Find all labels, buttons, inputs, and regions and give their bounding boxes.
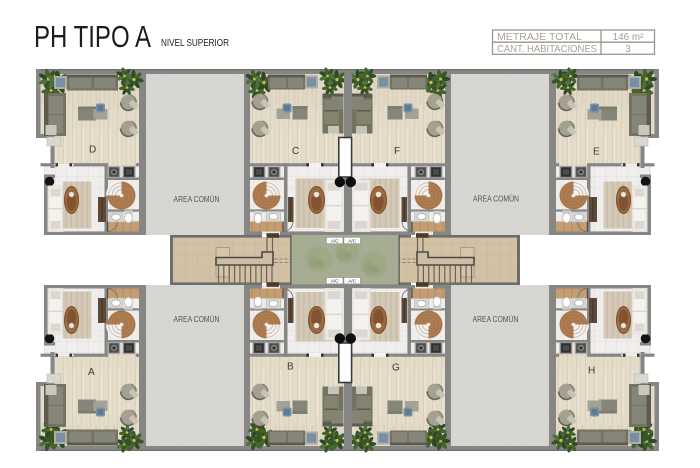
svg-text:G: G xyxy=(392,363,400,374)
svg-text:CANT. HABITACIONES: CANT. HABITACIONES xyxy=(497,44,597,55)
svg-text:H: H xyxy=(588,366,595,377)
svg-text:AREA COMÚN: AREA COMÚN xyxy=(174,314,220,324)
svg-text:METRAJE TOTAL: METRAJE TOTAL xyxy=(497,32,583,43)
svg-text:NIVEL SUPERIOR: NIVEL SUPERIOR xyxy=(161,38,229,49)
svg-text:A/C: A/C xyxy=(348,279,356,284)
svg-text:PH TIPO A: PH TIPO A xyxy=(34,20,152,54)
svg-text:E: E xyxy=(593,147,600,158)
svg-text:A/C: A/C xyxy=(348,238,356,243)
svg-text:A/C: A/C xyxy=(331,238,339,243)
svg-text:3: 3 xyxy=(625,44,631,55)
svg-text:AREA COMÚN: AREA COMÚN xyxy=(473,194,519,204)
svg-text:AREA COMÚN: AREA COMÚN xyxy=(174,194,220,204)
svg-text:B: B xyxy=(287,362,294,373)
svg-text:A/C: A/C xyxy=(331,279,339,284)
svg-text:A: A xyxy=(88,367,95,378)
svg-text:F: F xyxy=(394,146,400,157)
svg-text:D: D xyxy=(89,145,96,156)
svg-text:146 m²: 146 m² xyxy=(613,32,644,43)
svg-text:C: C xyxy=(292,146,299,157)
svg-text:AREA COMÚN: AREA COMÚN xyxy=(473,314,519,324)
